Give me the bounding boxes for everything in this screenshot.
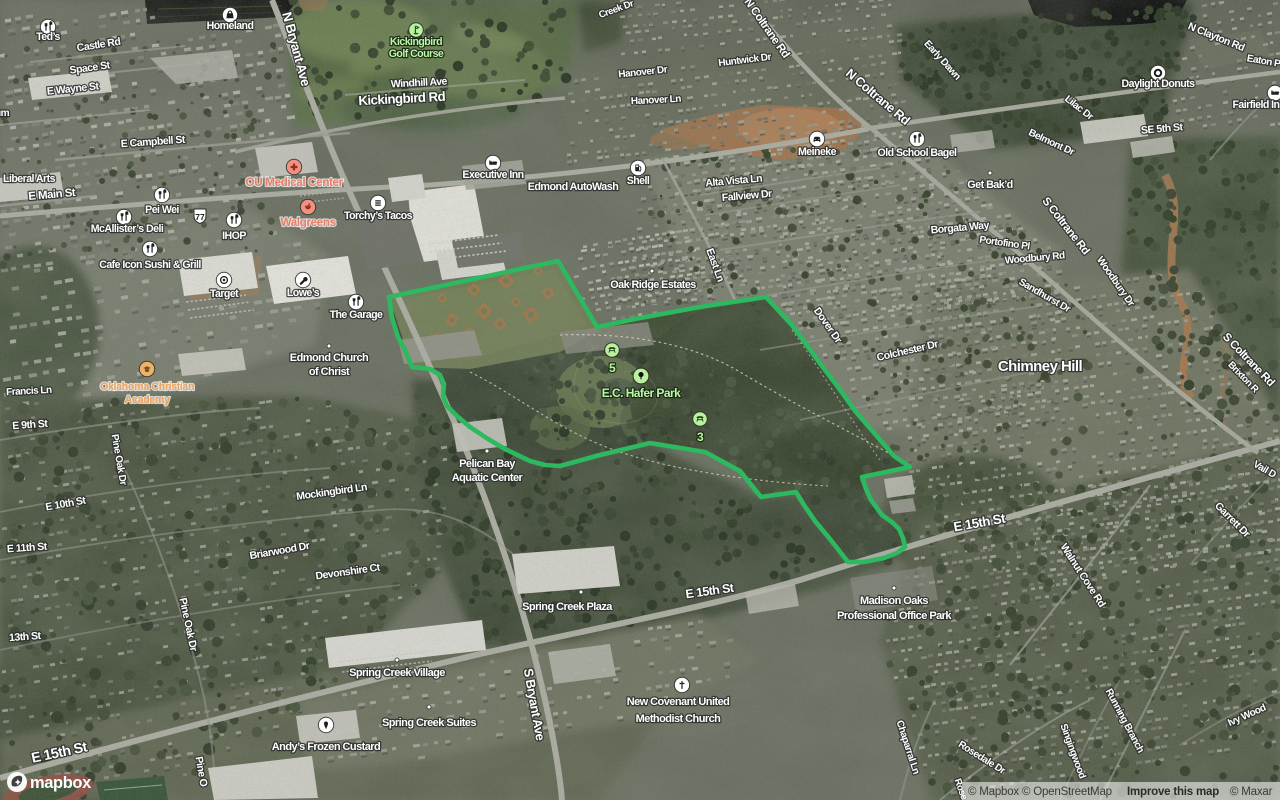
- svg-text:3: 3: [697, 430, 704, 444]
- svg-text:13th St: 13th St: [9, 630, 42, 644]
- svg-text:Ted’s: Ted’s: [36, 31, 60, 43]
- svg-text:Madison Oaks: Madison Oaks: [860, 595, 928, 607]
- svg-text:Oklahoma Christian: Oklahoma Christian: [100, 381, 195, 393]
- svg-text:Torchy’s Tacos: Torchy’s Tacos: [344, 210, 413, 222]
- svg-text:Professional Office Park: Professional Office Park: [837, 610, 952, 622]
- svg-text:E 9th St: E 9th St: [12, 418, 49, 432]
- svg-text:Fairfield In: Fairfield In: [1233, 99, 1280, 111]
- svg-text:Shell: Shell: [627, 175, 650, 187]
- svg-text:Edmond AutoWash: Edmond AutoWash: [528, 181, 619, 193]
- svg-text:Methodist Church: Methodist Church: [636, 713, 722, 725]
- svg-text:Improve this map: Improve this map: [1127, 786, 1219, 798]
- svg-text:Edmond Church: Edmond Church: [290, 352, 369, 364]
- svg-text:The Garage: The Garage: [330, 309, 383, 321]
- svg-text:Chimney Hill: Chimney Hill: [998, 358, 1083, 375]
- svg-text:Daylight Donuts: Daylight Donuts: [1122, 78, 1196, 90]
- svg-text:Golf Course: Golf Course: [389, 48, 444, 60]
- svg-text:Old School Bagel: Old School Bagel: [878, 147, 958, 159]
- svg-text:Pelican Bay: Pelican Bay: [459, 458, 516, 470]
- svg-text:New Covenant United: New Covenant United: [627, 696, 730, 708]
- svg-text:Target: Target: [210, 288, 239, 300]
- svg-text:Liberal Arts: Liberal Arts: [3, 173, 56, 185]
- svg-text:77: 77: [195, 212, 205, 222]
- svg-text:Lowe’s: Lowe’s: [287, 287, 320, 299]
- svg-text:© Maxar: © Maxar: [1230, 786, 1273, 798]
- svg-text:Homeland: Homeland: [207, 20, 254, 32]
- svg-text:mapbox: mapbox: [30, 774, 92, 792]
- svg-text:Executive Inn: Executive Inn: [462, 169, 523, 181]
- svg-text:E.C. Hafer Park: E.C. Hafer Park: [602, 386, 681, 400]
- svg-text:Academy: Academy: [124, 394, 170, 406]
- svg-text:5: 5: [609, 361, 616, 375]
- svg-text:McAllister’s Deli: McAllister’s Deli: [91, 223, 164, 235]
- svg-text:Spring Creek Plaza: Spring Creek Plaza: [522, 601, 613, 613]
- svg-text:Meineke: Meineke: [798, 146, 837, 158]
- svg-text:Aquatic Center: Aquatic Center: [452, 472, 524, 484]
- svg-text:IHOP: IHOP: [222, 230, 246, 242]
- svg-text:Spring Creek Suites: Spring Creek Suites: [382, 717, 477, 729]
- svg-text:Cafe Icon Sushi & Grill: Cafe Icon Sushi & Grill: [99, 259, 201, 271]
- svg-text:um: um: [0, 108, 10, 119]
- svg-text:Oak Ridge Estates: Oak Ridge Estates: [610, 279, 696, 291]
- svg-text:© Mapbox © OpenStreetMap: © Mapbox © OpenStreetMap: [968, 786, 1112, 798]
- svg-text:Kickingbird: Kickingbird: [390, 36, 442, 48]
- svg-text:Andy’s Frozen Custard: Andy’s Frozen Custard: [272, 741, 380, 753]
- svg-text:OU Medical Center: OU Medical Center: [245, 175, 343, 189]
- svg-text:Get Bak’d: Get Bak’d: [967, 179, 1012, 191]
- svg-text:Walgreens: Walgreens: [280, 215, 336, 229]
- svg-text:Spring Creek Village: Spring Creek Village: [349, 667, 445, 679]
- svg-text:Pei Wei: Pei Wei: [145, 204, 179, 216]
- svg-text:of Christ: of Christ: [309, 366, 350, 378]
